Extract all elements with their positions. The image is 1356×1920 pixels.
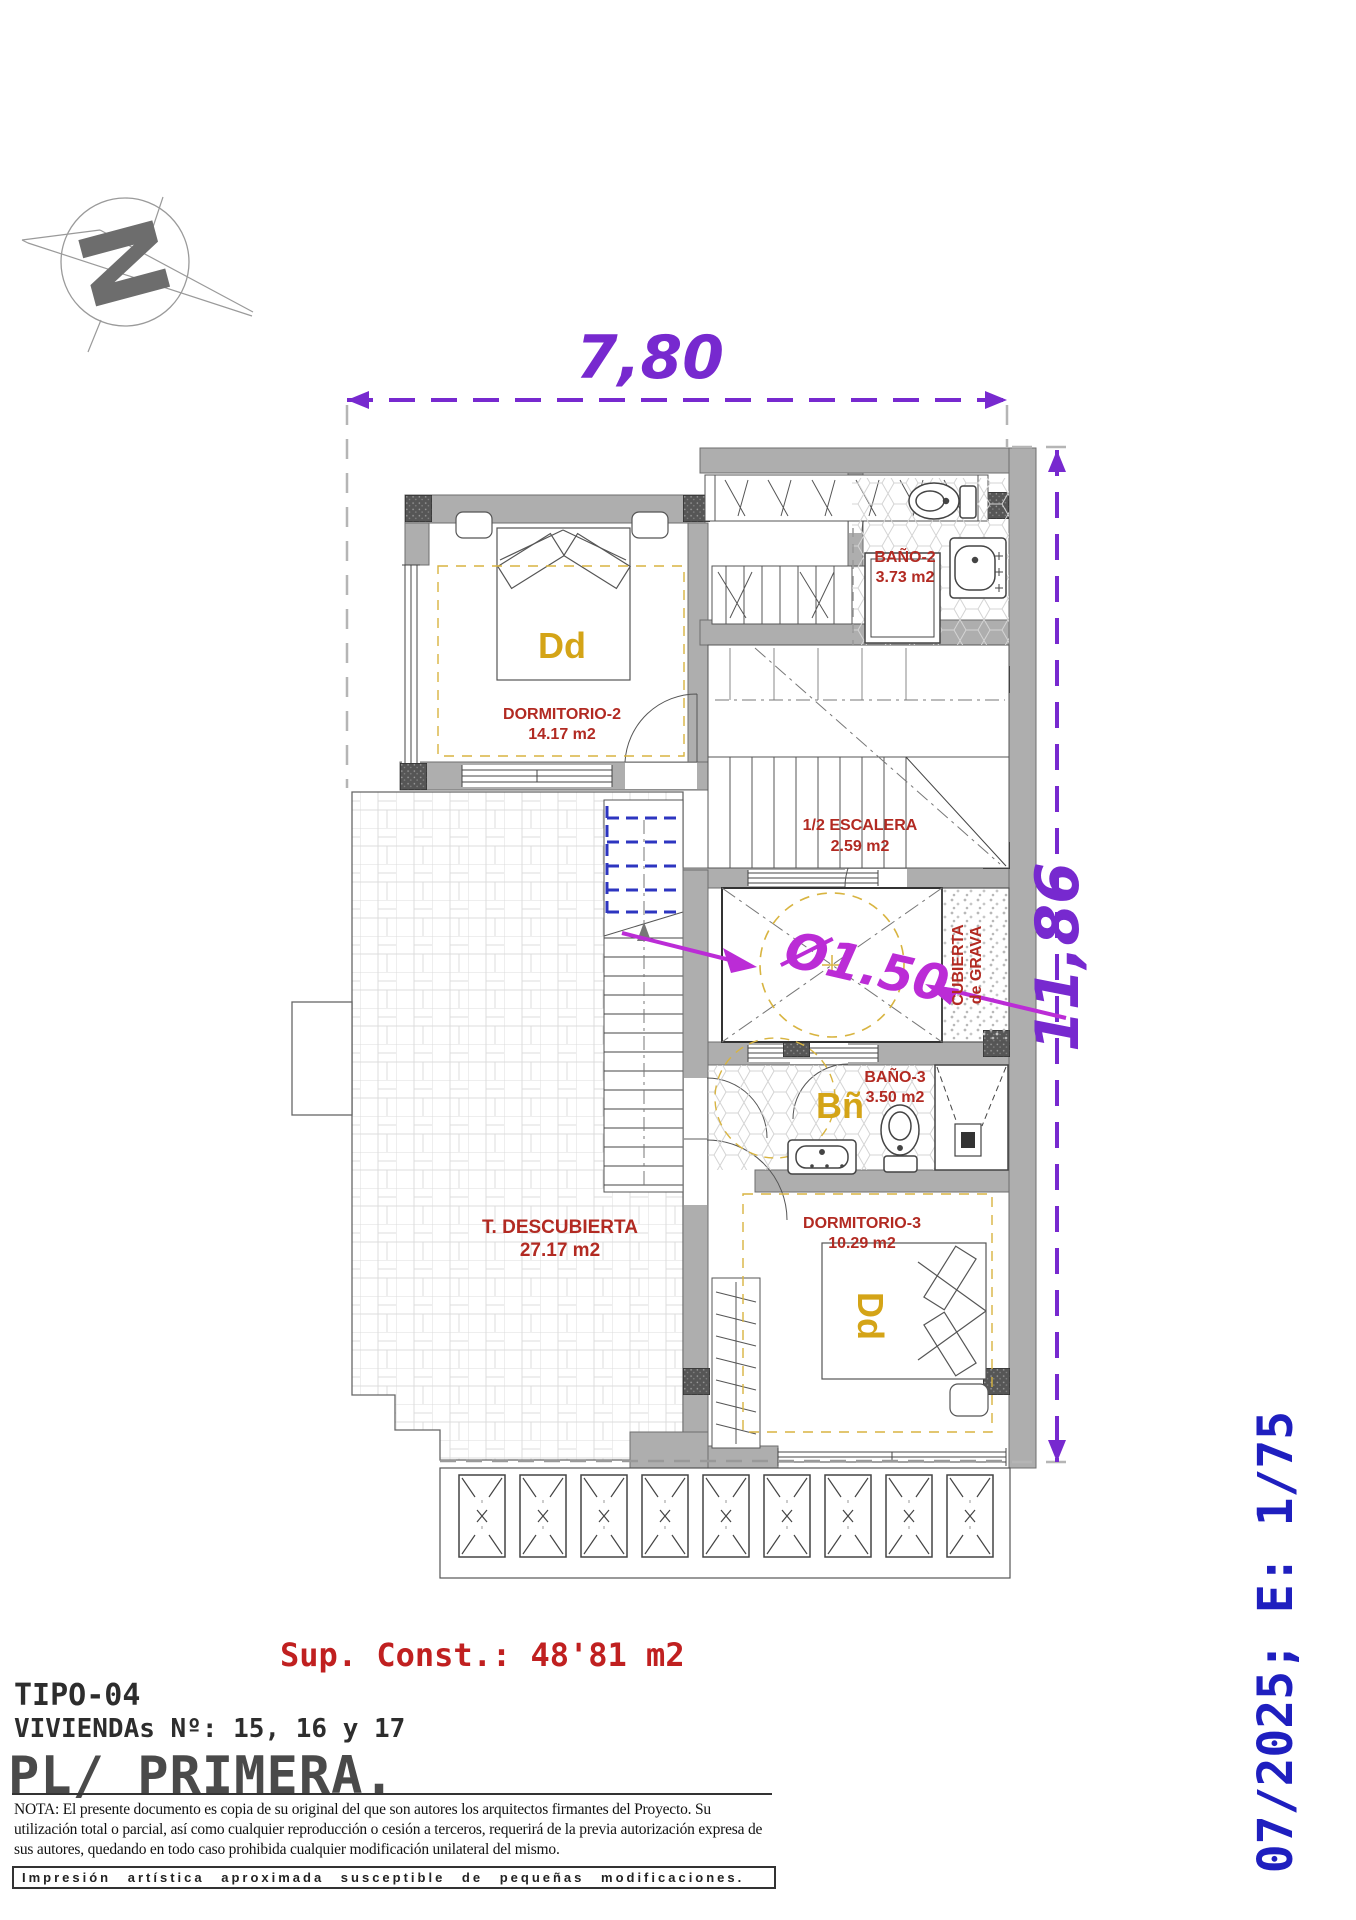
escalera-stair (708, 645, 1009, 868)
louver-panels (440, 1461, 1010, 1578)
bed3 (822, 1243, 988, 1416)
dormitorio2-area: 14.17 m2 (528, 726, 596, 743)
cubierta-line2: de GRAVA (968, 925, 985, 1004)
escalera-name: 1/2 ESCALERA (803, 817, 918, 834)
dimension-width: 7,80 (347, 323, 1007, 409)
cubierta-line1: CUBIERTA (950, 924, 967, 1006)
bano3-name: BAÑO-3 (864, 1066, 925, 1086)
bano2-area: 3.73 m2 (876, 569, 935, 586)
dimension-height-label: 11,86 (1023, 862, 1093, 1052)
nightstand (456, 512, 492, 538)
toilet-icon (909, 483, 976, 519)
north-compass-icon: N (22, 197, 253, 352)
toilet3-icon (881, 1105, 919, 1172)
date-scale-stamp: 07/2025; E: 1/75 (1248, 1411, 1304, 1873)
dormitorio3-area: 10.29 m2 (828, 1235, 896, 1252)
floor-plan-drawing: N (0, 0, 1356, 1920)
sink3-icon (788, 1140, 856, 1174)
north-letter: N (52, 206, 193, 322)
closet-bedroom3 (712, 1278, 760, 1448)
bano3-area: 3.50 m2 (866, 1089, 925, 1106)
terraza-area: 27.17 m2 (520, 1240, 600, 1261)
bath3-label: Bñ (816, 1085, 864, 1126)
terraza-name: T. DESCUBIERTA (482, 1217, 638, 1238)
nightstand (950, 1384, 988, 1416)
bed2-label: Dd (538, 625, 586, 666)
nightstand (632, 512, 668, 538)
terrace-stair (604, 800, 683, 1192)
separator-line (12, 1793, 772, 1795)
floor-plan-sheet: N (0, 0, 1356, 1920)
disclaimer-bar: Impresión artística aproximada susceptib… (12, 1866, 776, 1889)
type-label: TIPO-04 (14, 1678, 140, 1713)
dormitorio3-name: DORMITORIO-3 (803, 1215, 921, 1232)
terrace-side-step (292, 1002, 352, 1115)
floor-title: PL/ PRIMERA. (8, 1746, 396, 1806)
dormitorio2-name: DORMITORIO-2 (503, 706, 621, 723)
shower2-icon (865, 553, 940, 643)
legal-note: NOTA: El presente documento es copia de … (14, 1800, 770, 1859)
bano2-name: BAÑO-2 (874, 546, 935, 566)
shower3-icon (935, 1065, 1008, 1170)
dwellings-label: VIVIENDAs Nº: 15, 16 y 17 (14, 1714, 405, 1744)
dimension-width-label: 7,80 (576, 323, 724, 393)
bed3-label: Dd (850, 1292, 891, 1340)
sink-icon (950, 538, 1006, 598)
built-area-summary: Sup. Const.: 48'81 m2 (280, 1636, 685, 1674)
escalera-area: 2.59 m2 (831, 838, 890, 855)
